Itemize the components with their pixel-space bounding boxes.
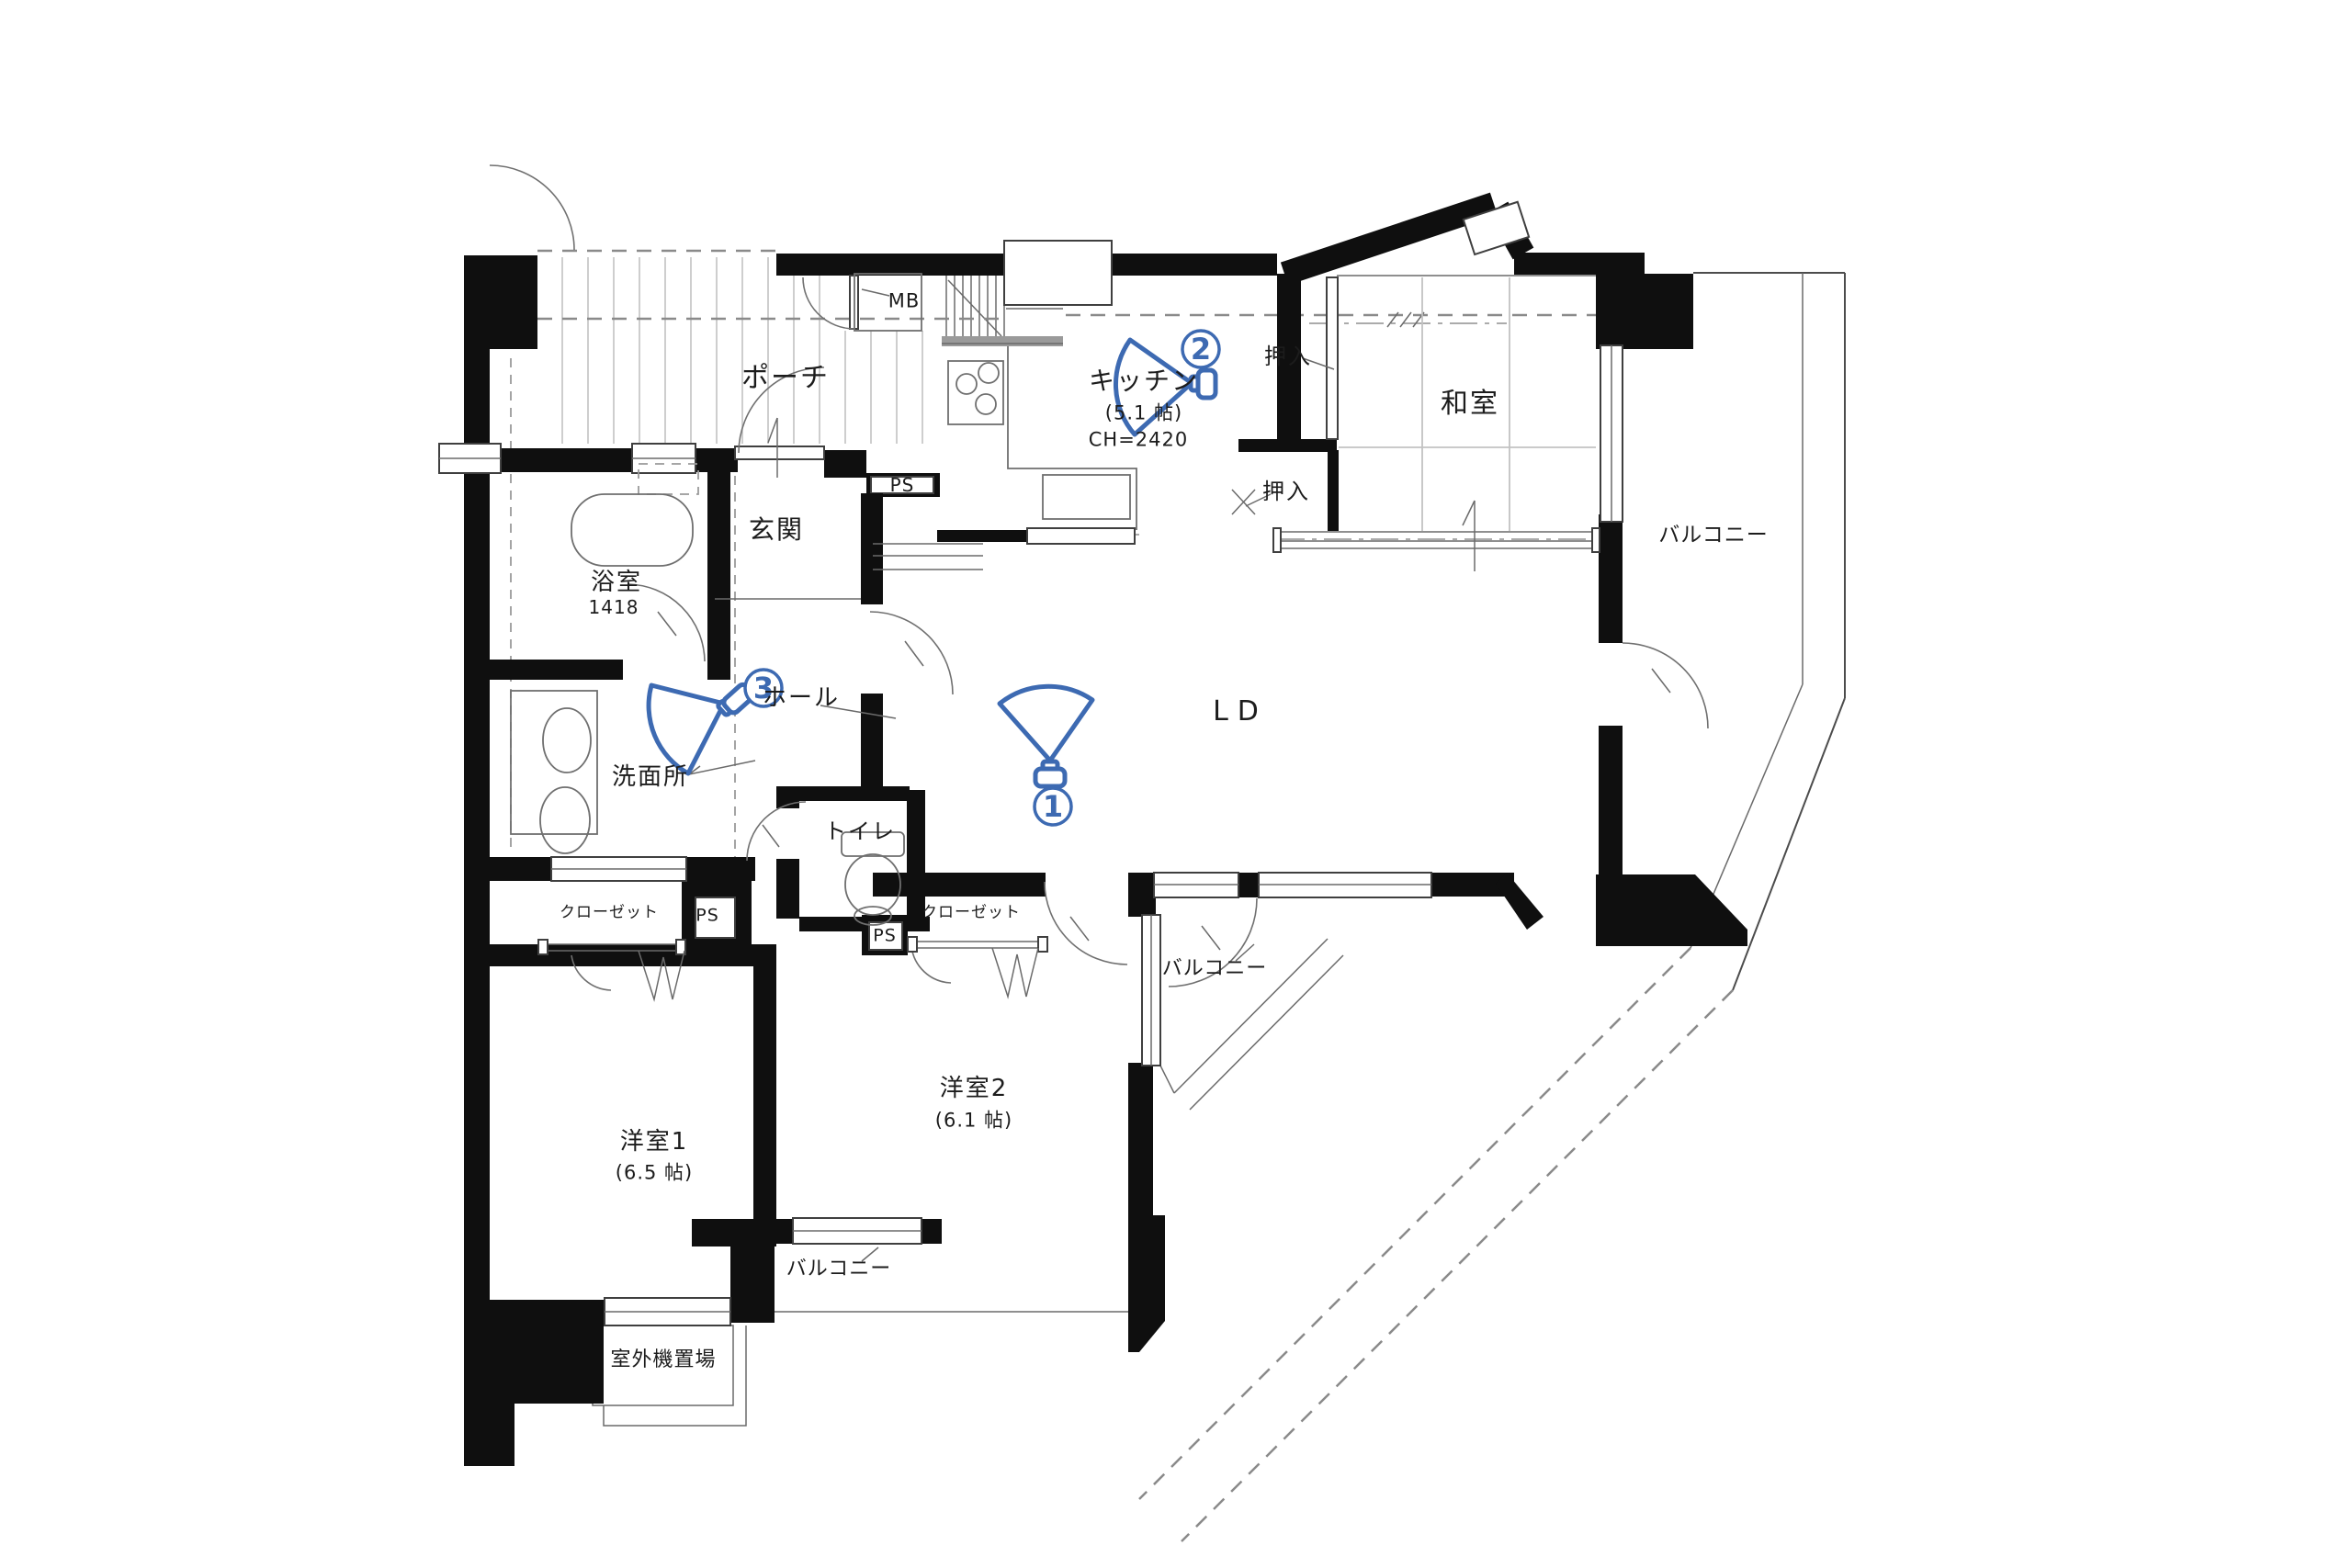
room-label-closet-left: クローゼット <box>560 906 659 921</box>
window-top-fix <box>1004 241 1112 305</box>
room-label-living: LD <box>1213 698 1268 726</box>
genkan-step-lines <box>715 544 983 599</box>
fusuma-track <box>1273 528 1600 552</box>
window-washroom <box>551 857 686 881</box>
vanity-sink <box>543 708 591 773</box>
stove <box>948 361 1003 424</box>
camera-marker-1[interactable]: 1 <box>1000 686 1092 825</box>
camera-1-number: 1 <box>1043 789 1063 824</box>
room-label-oshiire-upper: 押入 <box>1264 345 1312 367</box>
room-label-bath: 浴室 <box>591 570 642 594</box>
kitchen-island <box>1043 475 1130 519</box>
window-bedroom2-right <box>1142 915 1160 1066</box>
window-ld-south-1 <box>1154 873 1238 897</box>
room-label-washroom: 洗面所 <box>612 765 689 789</box>
room-label-mb: MB <box>888 292 921 311</box>
bathtub <box>571 494 693 566</box>
room-label-porch: ポーチ <box>741 365 830 392</box>
room-label-bedroom1: 洋室1 <box>620 1130 689 1154</box>
room-label-kitchen: キッチン <box>1089 368 1199 394</box>
room-label-outdoor-unit: 室外機置場 <box>610 1350 716 1371</box>
entry-door-threshold <box>735 446 824 459</box>
oshiire-slider <box>1327 277 1338 439</box>
washer <box>540 787 590 853</box>
room-label-washitsu: 和室 <box>1441 390 1499 418</box>
room-label-kitchen-ch: CH=2420 <box>1089 431 1189 450</box>
closet-right-rod <box>908 937 1047 997</box>
room-label-toilet: トイレ <box>824 820 896 842</box>
room-label-closet-right: クローゼット <box>922 906 1021 921</box>
balcony-right-rails <box>1139 273 1845 1541</box>
porch-deck-hatch <box>562 257 922 444</box>
room-label-kitchen-size: (5.1 帖) <box>1105 404 1182 423</box>
window-bedroom2 <box>793 1218 922 1244</box>
room-label-oshiire-lower: 押入 <box>1262 480 1310 502</box>
window-kitchen-counter <box>1027 528 1135 544</box>
camera-2-number: 2 <box>1191 332 1211 367</box>
room-label-bath-size: 1418 <box>589 598 639 616</box>
floor-plan-canvas: 1 2 3 ポーチ MB キッチン (5.1 帖) CH=2420 押入 押入 … <box>0 0 2352 1568</box>
room-label-ps-top: PS <box>890 476 915 494</box>
floor-plan-drawing: 1 2 3 <box>0 0 2352 1568</box>
room-label-bedroom2-size: (6.1 帖) <box>935 1111 1012 1131</box>
outdoor-unit-area <box>593 1325 746 1426</box>
room-label-balcony-ld: バルコニー <box>1162 959 1268 979</box>
window-ld-south-2 <box>1259 873 1431 897</box>
room-label-ps-left: PS <box>695 908 719 925</box>
room-label-balcony-right: バルコニー <box>1658 525 1769 547</box>
window-bath-left <box>439 444 501 473</box>
room-label-ps-right: PS <box>873 928 897 945</box>
room-label-hall: ホール <box>763 686 840 710</box>
room-label-bedroom2: 洋室2 <box>940 1077 1009 1100</box>
room-label-bedroom1-size: (6.5 帖) <box>616 1164 693 1183</box>
window-bedroom1 <box>605 1298 730 1325</box>
window-washitsu-right <box>1600 345 1623 522</box>
room-label-genkan: 玄関 <box>749 517 804 543</box>
window-porch <box>632 444 695 473</box>
room-label-balcony-south: バルコニー <box>786 1259 892 1280</box>
